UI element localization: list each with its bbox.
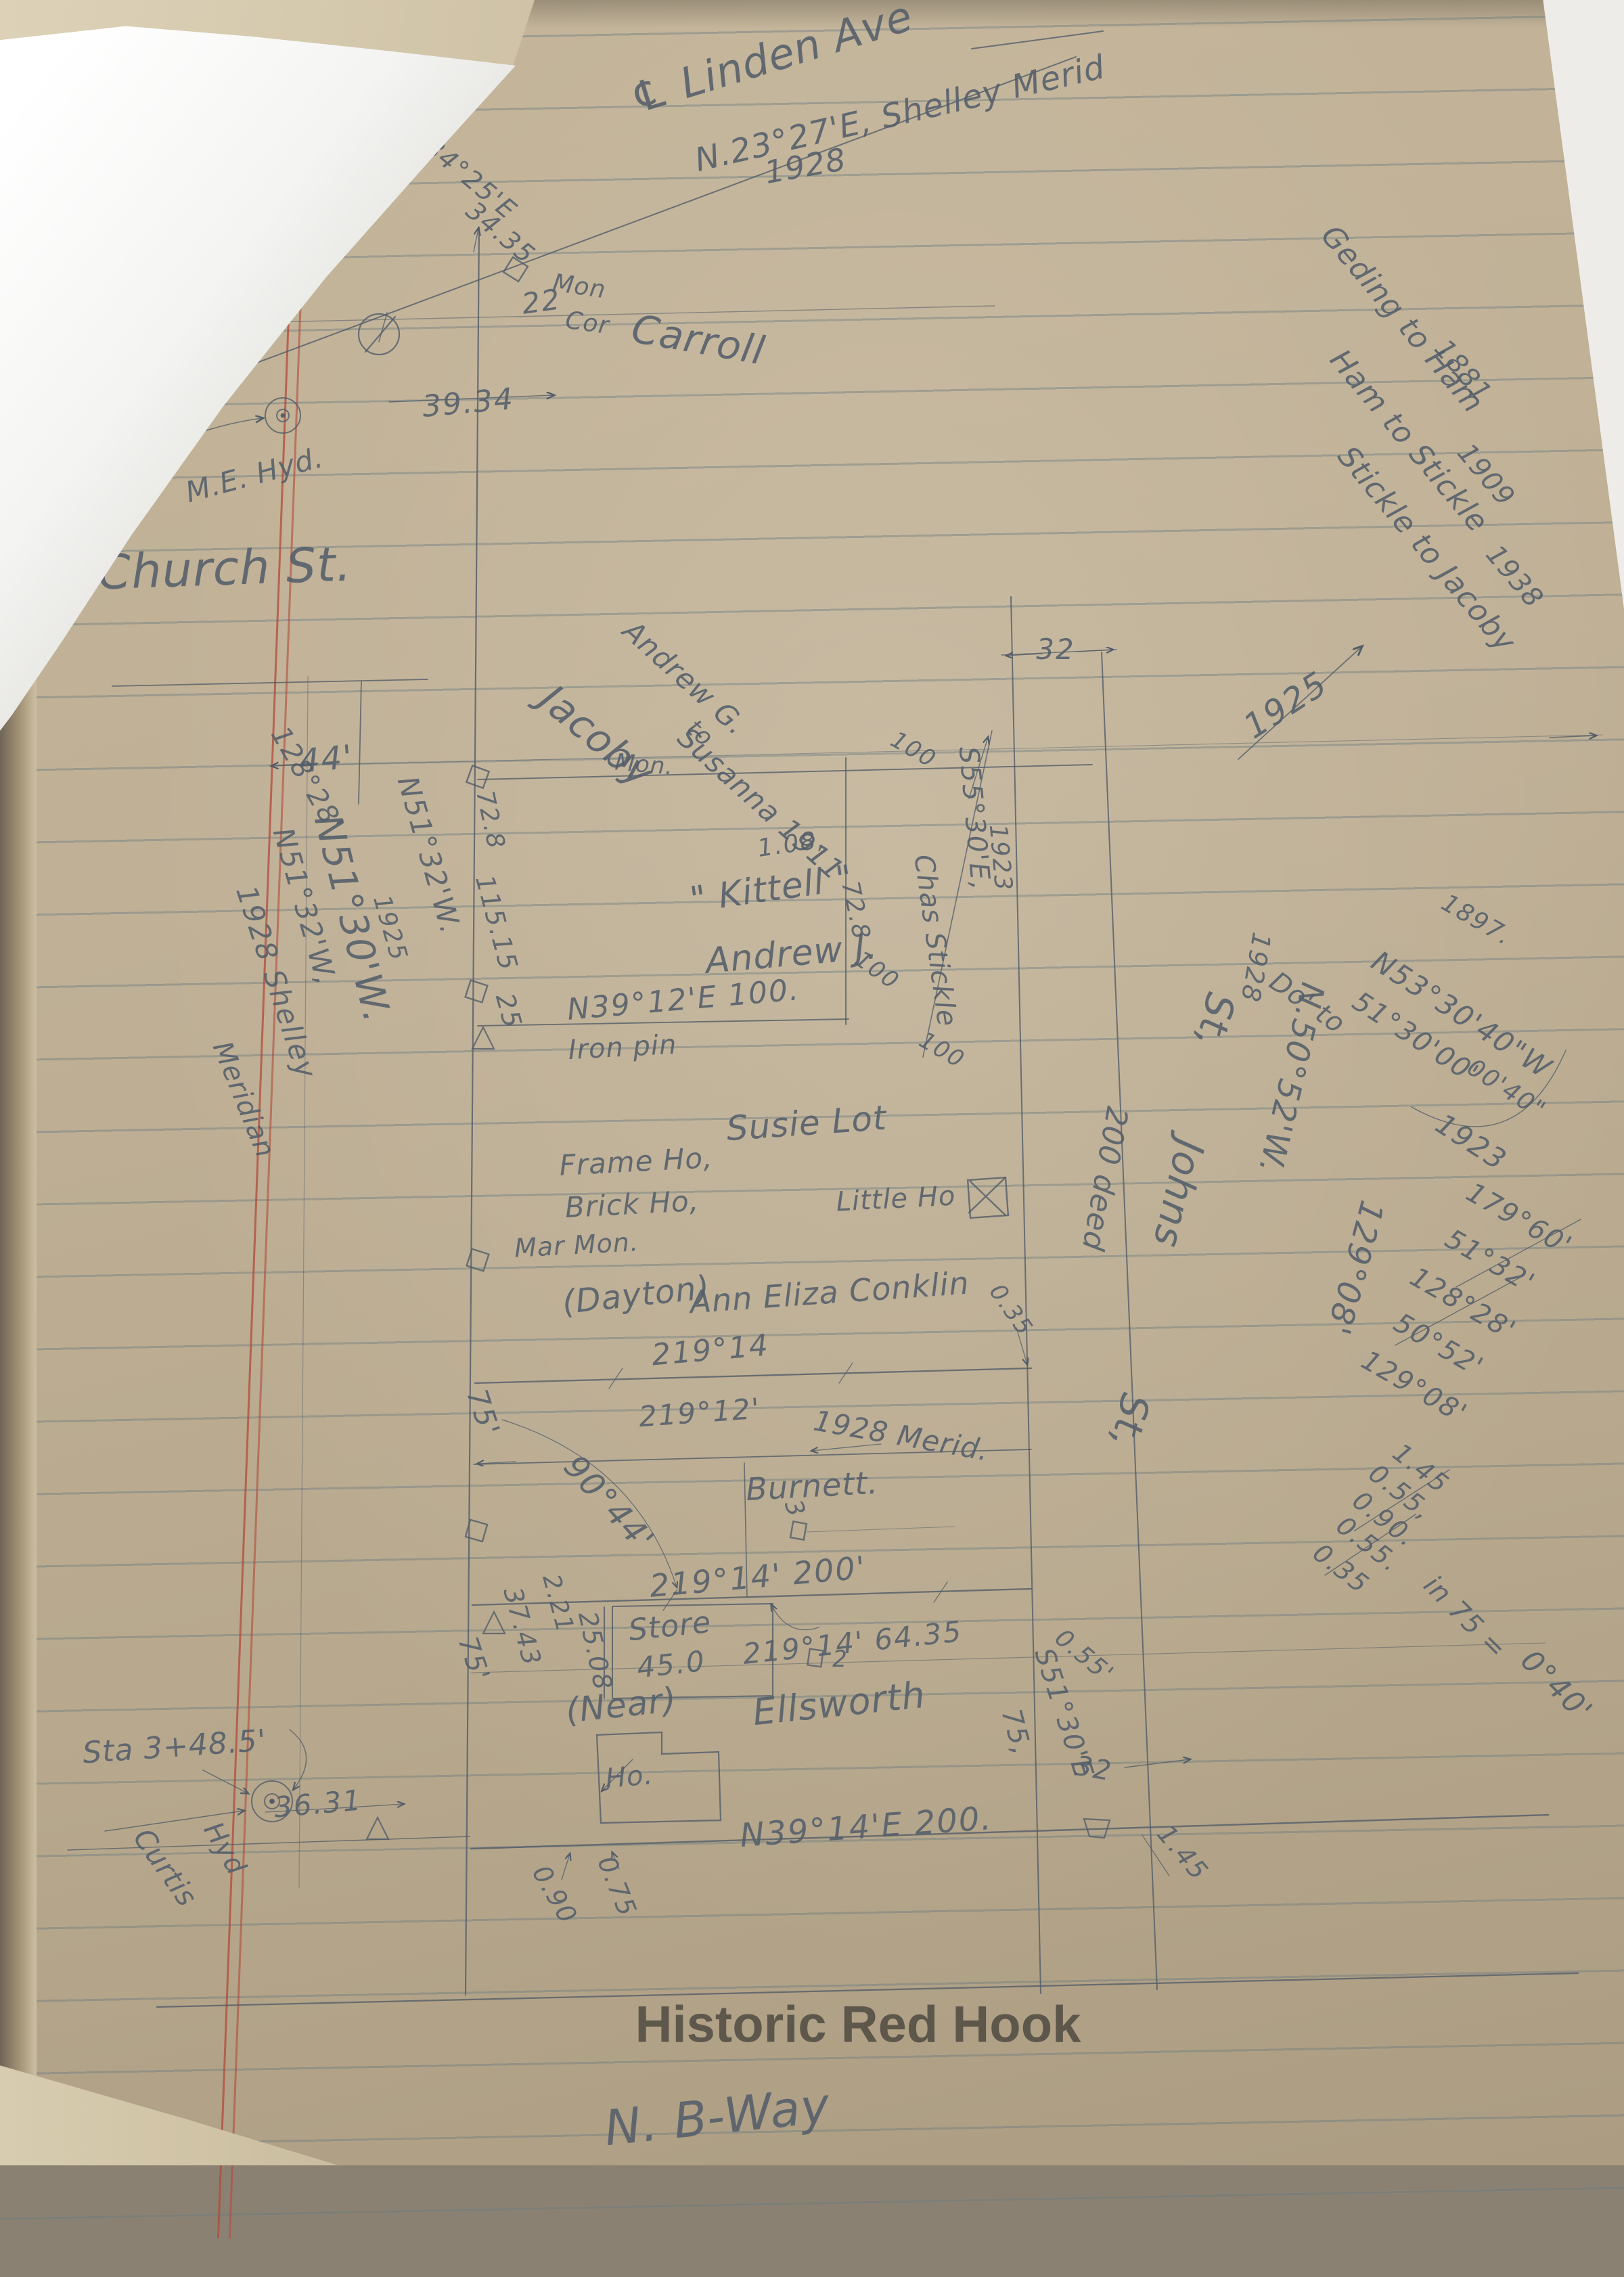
mon-label-2: Mon. [614,750,674,778]
dist-3631: 36.31 [273,1786,363,1822]
kittell-north-line [478,765,1092,780]
stjohns-st-2: St, [1105,1390,1156,1452]
little-ho: Little Ho [836,1182,957,1215]
dim-22-right: 22 [520,285,563,319]
az-21912: 219°12' [638,1395,762,1431]
block-west-line [466,227,479,1995]
burnett-name: Burnett. [745,1467,879,1505]
dim-32-bottom: 32 [1073,1753,1114,1786]
iron-pin: Iron pin [568,1031,678,1064]
curve-6435 [771,1605,819,1630]
dim32b-arrow [1125,1759,1190,1767]
cor-word: Cor [564,309,610,339]
conklin-line [475,1368,1031,1383]
page-stack-left-edge [0,677,37,2165]
dist-450: 45.0 [635,1647,706,1682]
frame-ho: Frame Ho, [559,1144,714,1180]
ho-label: Ho. [604,1761,654,1793]
little-ho-symbol [968,1177,1008,1218]
archive-watermark: Historic Red Hook [635,1996,1081,2054]
dim32-arrow-right [1077,650,1112,652]
dist-2-small: 2 [832,1648,849,1671]
photographed-fieldbook-page: ℄ Linden AveN.23°27'E, Shelley Merid1928… [0,0,1624,2165]
stjohns-st-1: St, [1190,989,1241,1052]
year-1923: 1923 [985,824,1016,893]
me-hydrant-symbol [265,398,300,433]
sta-arrow-a [203,1770,248,1793]
ave-underline [972,31,1103,49]
brick-ho: Brick Ho, [564,1187,700,1222]
stjohns-east-line [1102,652,1157,1989]
n3914-line [471,1815,1548,1849]
sta-arrow-c [290,1730,307,1789]
store-label: Store [627,1608,713,1646]
dim-32-top: 32 [1036,635,1075,664]
lot3-faint-line [807,1527,954,1532]
dist-3934: 39.34 [421,384,515,422]
mar-mon: Mar Mon. [514,1229,639,1261]
church-st: Church St. [97,540,353,596]
kittell-south-line [478,1019,849,1026]
arrow-090 [562,1854,570,1880]
